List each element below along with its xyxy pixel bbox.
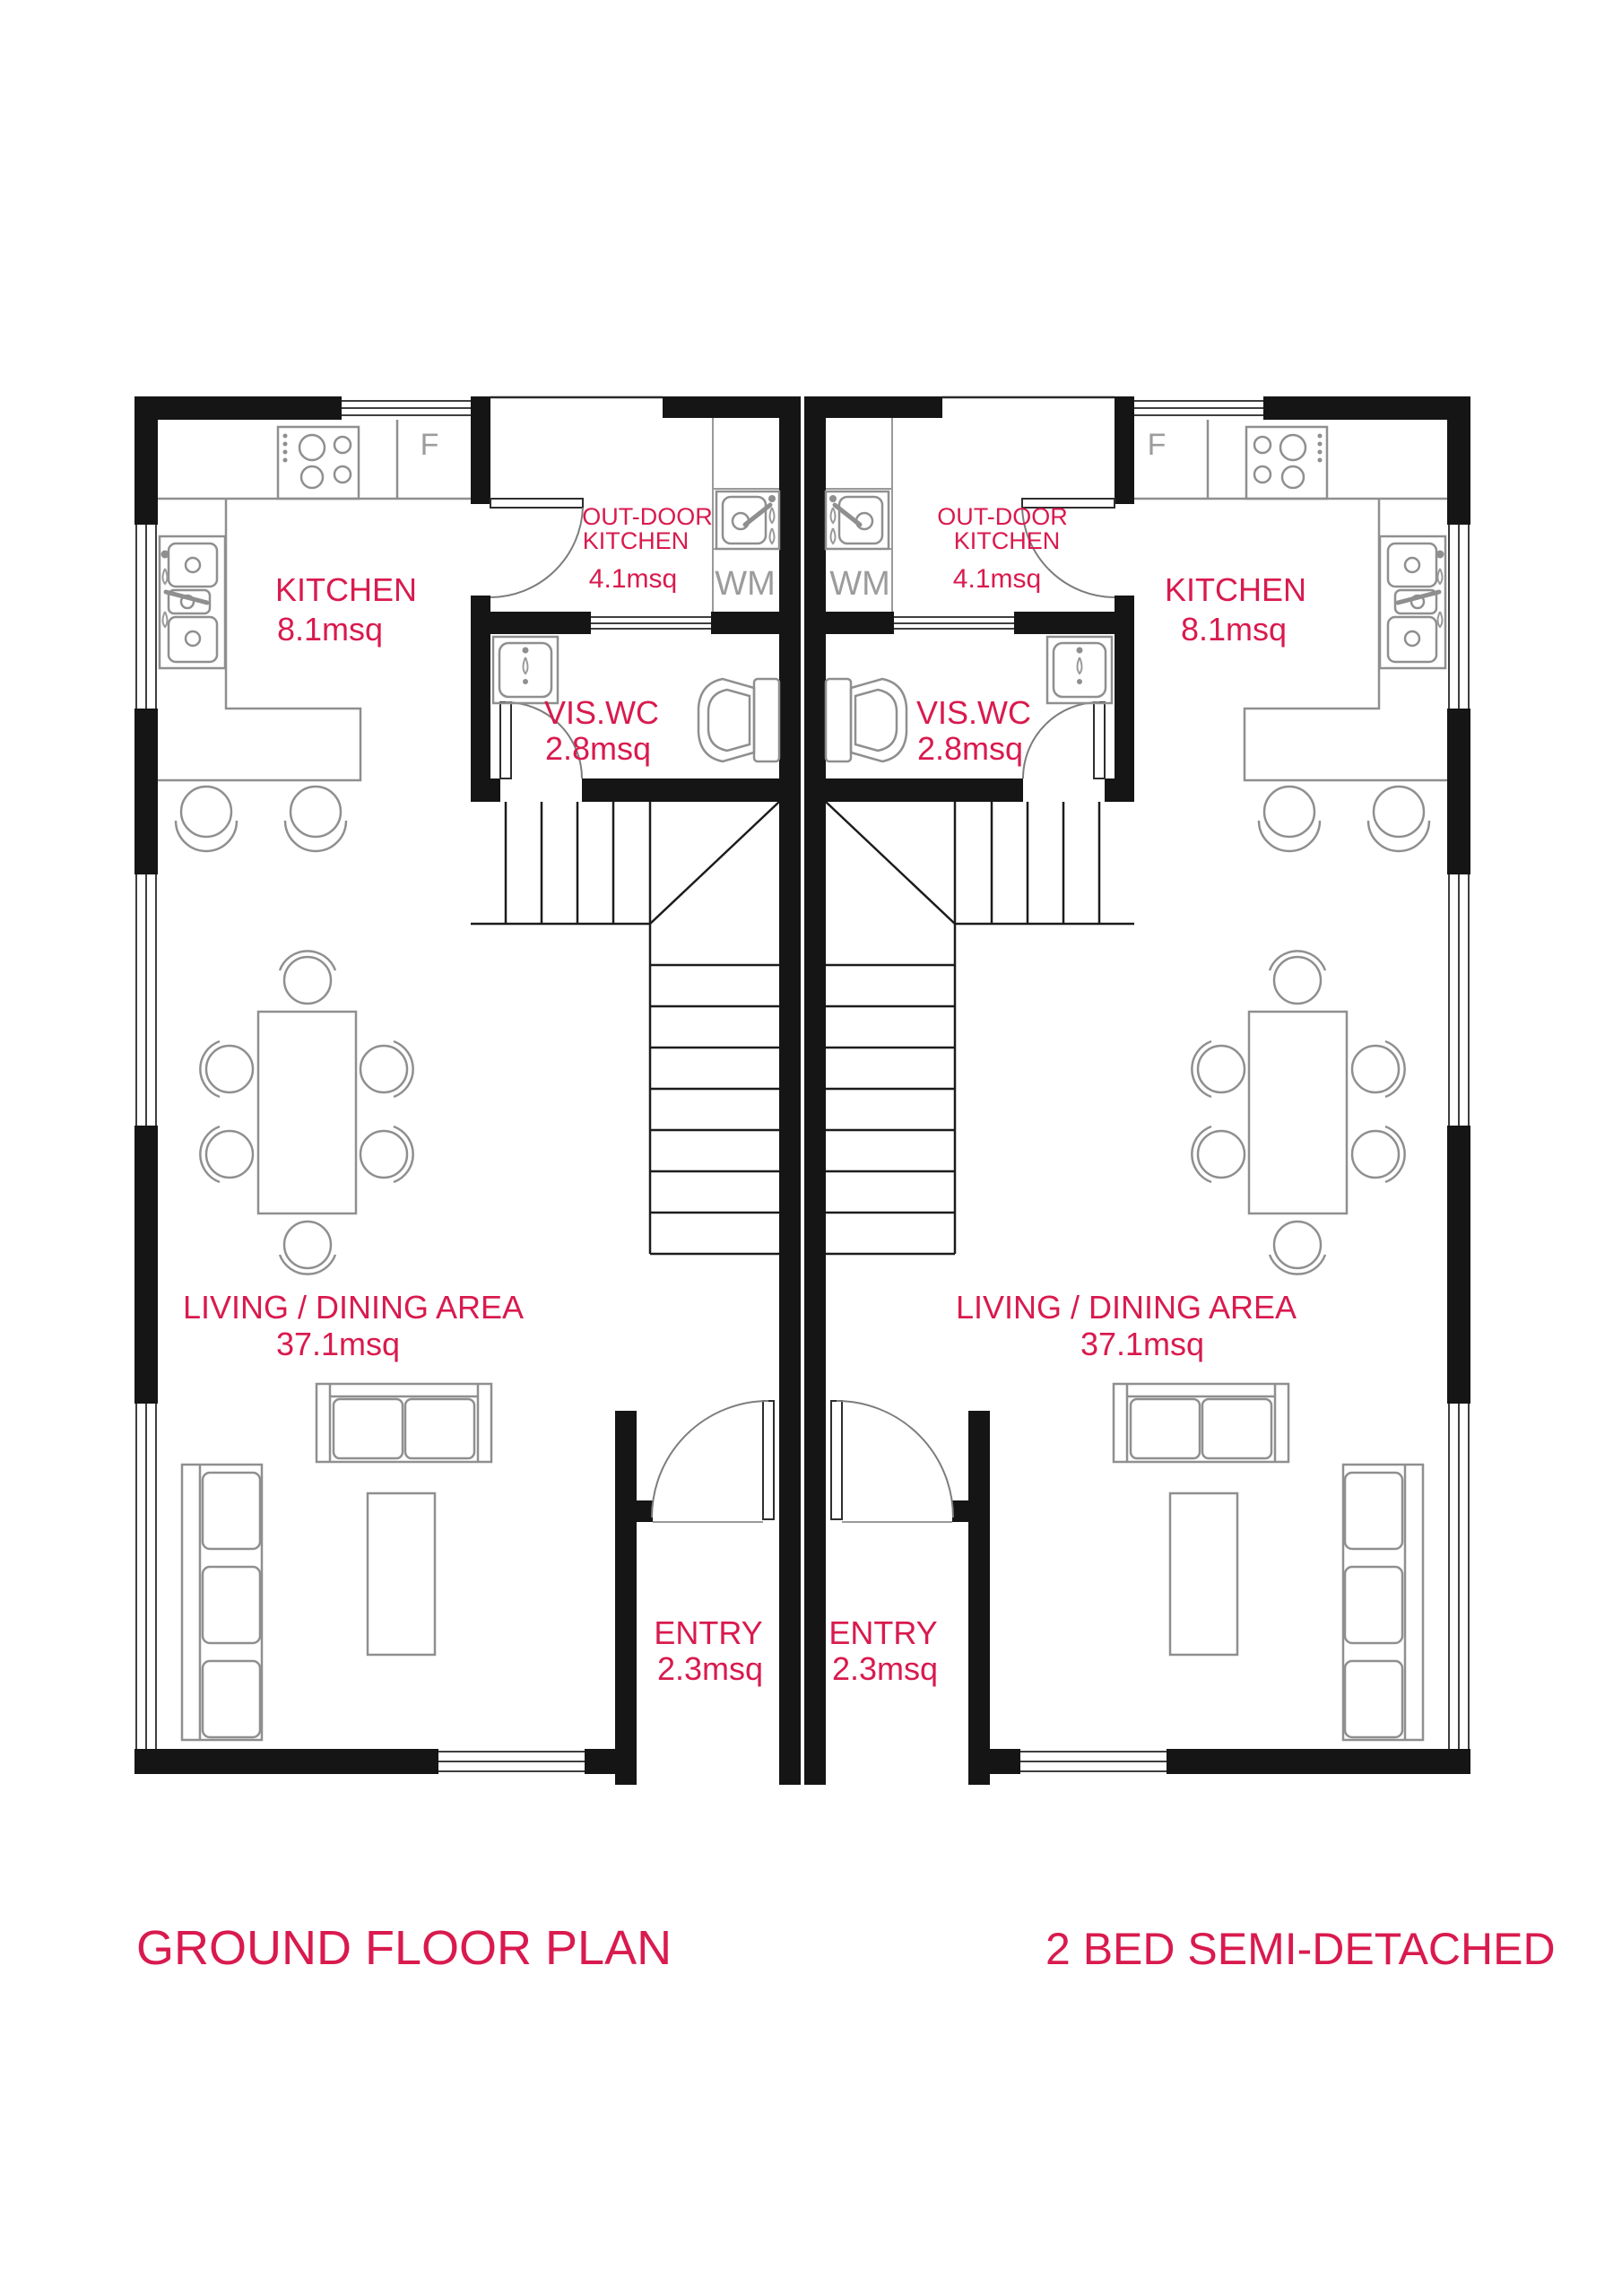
floor-plan-drawing: KITCHEN 8.1msq OUT-DOOR KITCHEN 4.1msq V… <box>0 0 1622 2296</box>
room-labels: KITCHEN 8.1msq OUT-DOOR KITCHEN 4.1msq V… <box>183 503 1306 1687</box>
outdoor-kitchen-label1-right: OUT-DOOR <box>937 503 1068 530</box>
sheet-title: GROUND FLOOR PLAN <box>136 1921 672 1975</box>
outdoor-kitchen-label1-left: OUT-DOOR <box>582 503 713 530</box>
fridge-label-right: F <box>1148 428 1167 462</box>
wc-area-left: 2.8msq <box>545 730 651 767</box>
living-label-left: LIVING / DINING AREA <box>183 1289 524 1326</box>
entry-area-right: 2.3msq <box>832 1650 938 1687</box>
wc-area-right: 2.8msq <box>917 730 1023 767</box>
fridge-label-left: F <box>421 428 439 462</box>
living-label-right: LIVING / DINING AREA <box>956 1289 1297 1326</box>
kitchen-label-right: KITCHEN <box>1165 571 1306 608</box>
washing-machine-label-right: WM <box>829 565 890 603</box>
washing-machine-label-left: WM <box>715 565 776 603</box>
kitchen-area-right: 8.1msq <box>1181 611 1287 648</box>
plan-type-title: 2 BED SEMI-DETACHED <box>1045 1924 1556 1974</box>
entry-label-right: ENTRY <box>828 1614 937 1651</box>
entry-label-left: ENTRY <box>654 1614 762 1651</box>
entry-area-left: 2.3msq <box>657 1650 763 1687</box>
kitchen-label-left: KITCHEN <box>275 571 417 608</box>
wc-label-left: VIS.WC <box>544 694 659 731</box>
outdoor-kitchen-area-right: 4.1msq <box>953 564 1041 594</box>
unit-right-structure <box>804 396 1470 1785</box>
kitchen-area-left: 8.1msq <box>277 611 383 648</box>
living-area-left: 37.1msq <box>276 1326 400 1362</box>
living-area-right: 37.1msq <box>1080 1326 1204 1362</box>
unit-left-structure <box>134 396 801 1785</box>
wc-label-right: VIS.WC <box>916 694 1031 731</box>
outdoor-kitchen-area-left: 4.1msq <box>589 564 677 594</box>
title-block: GROUND FLOOR PLAN 2 BED SEMI-DETACHED <box>136 1921 1556 1975</box>
outdoor-kitchen-label2-left: KITCHEN <box>583 527 690 554</box>
floor-plan-sheet: KITCHEN 8.1msq OUT-DOOR KITCHEN 4.1msq V… <box>0 0 1622 2296</box>
outdoor-kitchen-label2-right: KITCHEN <box>954 527 1061 554</box>
